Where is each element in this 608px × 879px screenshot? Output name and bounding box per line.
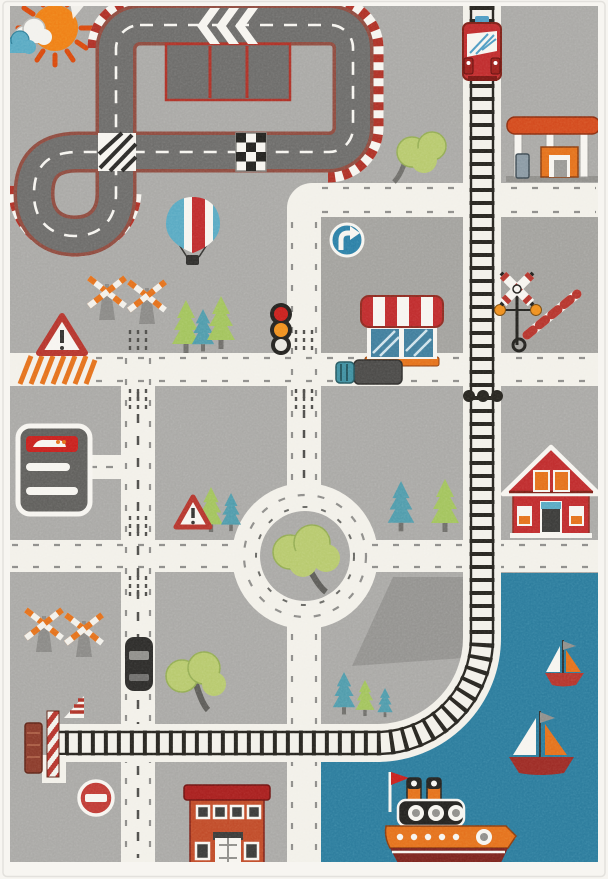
product-photo <box>0 0 608 879</box>
play-rug-image <box>0 0 608 879</box>
rug-texture <box>10 6 598 862</box>
